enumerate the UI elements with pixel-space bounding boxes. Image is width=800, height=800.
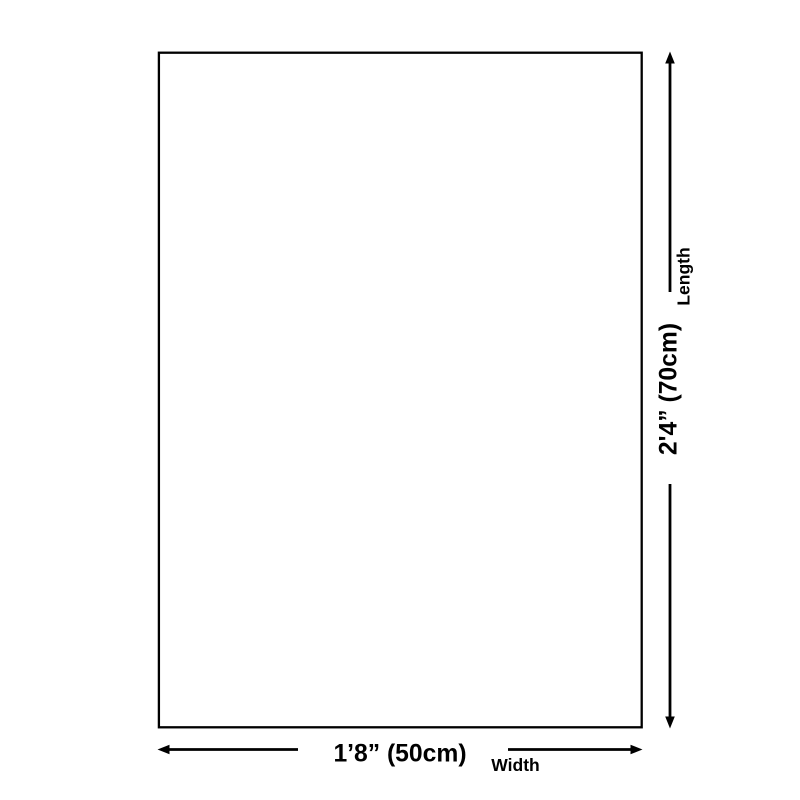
svg-text:1’8” (50cm): 1’8” (50cm) (333, 741, 466, 768)
svg-text:Width: Width (491, 755, 539, 775)
svg-text:Length: Length (674, 247, 694, 305)
svg-text:2'4” (70cm): 2'4” (70cm) (656, 323, 683, 455)
